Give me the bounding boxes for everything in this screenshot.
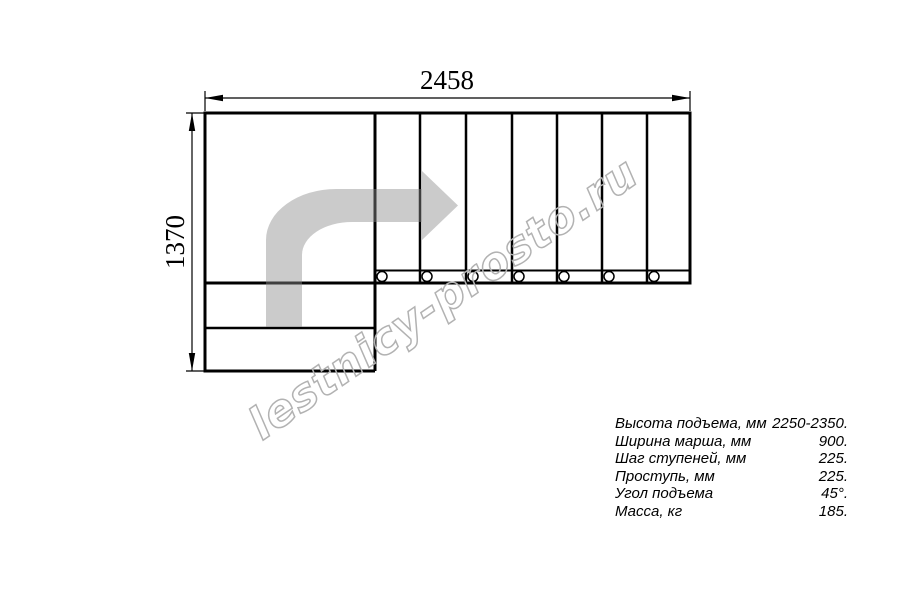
dimension-arrowhead-top <box>189 113 195 131</box>
fastener-circle <box>649 272 659 282</box>
spec-row-flight-width: Ширина марша, мм 900. <box>615 433 848 451</box>
spec-row-rise-angle: Угол подъема 45°. <box>615 485 848 503</box>
dimension-arrowhead-left <box>205 95 223 101</box>
dimension-width-value: 2458 <box>420 65 474 95</box>
dimension-height-value: 1370 <box>160 215 190 269</box>
spec-label: Высота подъема, мм <box>615 415 767 433</box>
spec-row-rise-height: Высота подъема, мм 2250-2350. <box>615 415 848 433</box>
spec-label: Угол подъема <box>615 485 713 503</box>
spec-label: Ширина марша, мм <box>615 433 751 451</box>
dimension-top: 2458 <box>205 65 690 111</box>
spec-value: 900. <box>819 433 848 451</box>
spec-value: 185. <box>819 503 848 521</box>
spec-value: 225. <box>819 468 848 486</box>
dimension-arrowhead-bottom <box>189 353 195 371</box>
spec-label: Масса, кг <box>615 503 682 521</box>
spec-row-tread-depth: Проступь, мм 225. <box>615 468 848 486</box>
fastener-circle <box>559 272 569 282</box>
spec-row-mass: Масса, кг 185. <box>615 503 848 521</box>
spec-label: Шаг ступеней, мм <box>615 450 746 468</box>
staircase-drawing-page: 2458 1370 lestnicy-prosto.ru Высота подъ… <box>0 0 900 600</box>
dimension-left: 1370 <box>160 113 204 371</box>
spec-value: 45°. <box>821 485 848 503</box>
spec-label: Проступь, мм <box>615 468 715 486</box>
fastener-circle <box>377 272 387 282</box>
spec-row-step-pitch: Шаг ступеней, мм 225. <box>615 450 848 468</box>
spec-value: 225. <box>819 450 848 468</box>
specs-list: Высота подъема, мм 2250-2350. Ширина мар… <box>615 415 848 520</box>
spec-value: 2250-2350. <box>772 415 848 433</box>
dimension-arrowhead-right <box>672 95 690 101</box>
fastener-circle <box>604 272 614 282</box>
